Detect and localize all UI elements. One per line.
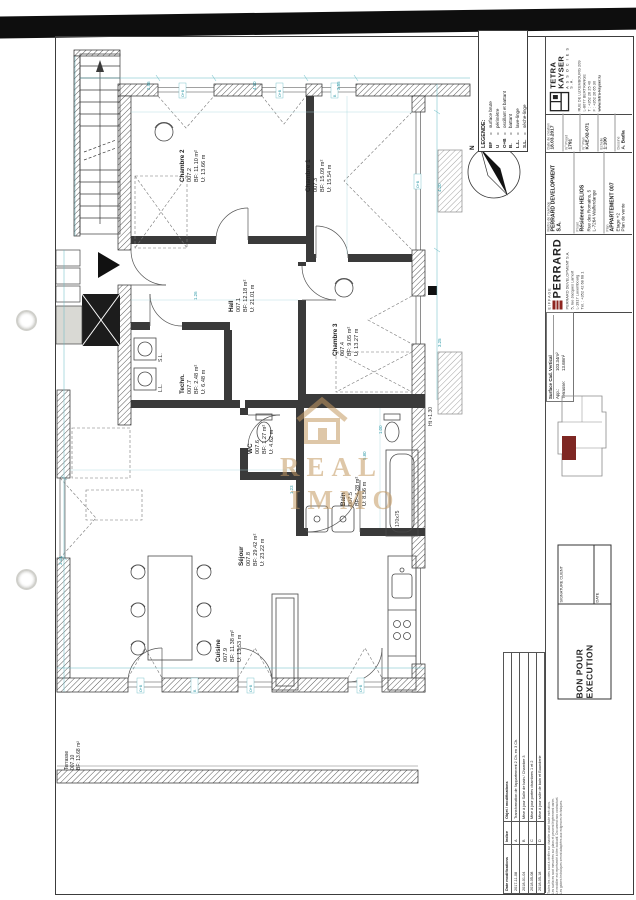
entry-arrow bbox=[98, 252, 120, 278]
room-name: Techn. bbox=[179, 374, 186, 394]
rev-object: Transformation de l'appartement 2 Ch. en… bbox=[512, 653, 520, 822]
window-tag-label: O+B bbox=[181, 89, 185, 97]
architect-web: www.tetra-kayser.lu bbox=[597, 38, 602, 112]
room-name: Cuisine bbox=[215, 639, 222, 662]
north-label: N bbox=[469, 145, 476, 150]
field-value: 1791 bbox=[568, 116, 574, 150]
dimension-value: 3.55 bbox=[336, 81, 341, 90]
field-project-no: N° Projet1791 bbox=[563, 114, 581, 152]
legend-item: U=périmètre bbox=[495, 34, 502, 148]
project-city: L-7264 Walferdange bbox=[591, 154, 596, 232]
field-value: KAE-02-071 bbox=[586, 116, 592, 150]
room-bf: BF: 9.05 m² bbox=[347, 327, 353, 356]
architect-block: TETRA KAYSER A S S O C I E S S.A. RUE DE… bbox=[546, 36, 633, 114]
room-number: 007.3 bbox=[313, 178, 319, 192]
exterior-walls bbox=[57, 50, 470, 783]
window-tag-label: O+B bbox=[249, 684, 253, 692]
tetra-kayser-logo-icon bbox=[548, 92, 572, 112]
room-name: WC bbox=[247, 443, 254, 454]
room-u: U: 13.66 m bbox=[201, 154, 207, 182]
room-label-techn: Techn. 007.7 BF: 2.48 m² U: 6.48 m bbox=[179, 365, 207, 394]
room-name: Hall bbox=[228, 300, 235, 312]
room-u: U: 6.48 m bbox=[201, 369, 207, 394]
room-bf: BF: 11.38 m² bbox=[230, 630, 236, 662]
room-u: U: 23.22 m bbox=[260, 538, 266, 566]
revisions-table: Date modifications Indice Objet / modifi… bbox=[503, 652, 545, 894]
service-boxes bbox=[56, 250, 82, 344]
dimension-value: 1.00 bbox=[378, 425, 383, 434]
rev-date: 2018-01-04 bbox=[520, 845, 528, 894]
window-swing-marks bbox=[60, 96, 412, 678]
field-plan-no: N° PlanKAE-02-071 bbox=[581, 114, 599, 152]
field-value: 1:100 bbox=[603, 116, 609, 150]
notes-block: Toutes les cotes sont à vérifier sur cha… bbox=[547, 652, 563, 894]
legend-item: S.L.=sèche-linge bbox=[522, 34, 529, 148]
legend-item: BF=surface brute bbox=[488, 34, 495, 148]
surfaces-block: Surface Cad. Vertical App.:103.34m² Terr… bbox=[546, 312, 574, 402]
field-date: Date de création18.03.2017 bbox=[546, 114, 564, 152]
plan-type: Plan de vente bbox=[621, 154, 626, 232]
room-number: 007.6 bbox=[255, 440, 261, 454]
rev-header-index: Indice bbox=[504, 822, 512, 845]
dimension-value: 4.20 bbox=[437, 183, 442, 192]
rev-object: Mise à jour Salle de bain / Chambre 3 bbox=[520, 653, 528, 822]
legend-def: surface brute bbox=[488, 101, 495, 128]
room-bf: BF: 12.18 m² bbox=[243, 280, 249, 312]
room-bf: BF: 13.68 m² bbox=[76, 741, 82, 770]
room-label-chambre2: Chambre 2 007.2 BF: 11.10 m² U: 13.66 m bbox=[179, 149, 207, 182]
client-cell: Maître de l'ouvrage PERRARD DEVELOPMENT … bbox=[546, 152, 575, 234]
date-label: DATE bbox=[595, 546, 611, 604]
room-number: 007.7 bbox=[187, 380, 193, 394]
field-scale: Echelle1:100 bbox=[598, 114, 616, 152]
rev-date: 2018-05-08 bbox=[528, 845, 536, 894]
room-label-cuisine: Cuisine 007.9 BF: 11.38 m² U: 13.53 m bbox=[215, 630, 243, 662]
room-bf: BF: 11.10 m² bbox=[194, 150, 200, 182]
window-tag-label: O+B bbox=[359, 684, 363, 692]
room-name: Chambre 1 bbox=[305, 159, 312, 192]
room-number: 007.1 bbox=[236, 298, 242, 312]
dimension-value: 4.20 bbox=[252, 81, 257, 90]
project-cell: Projet Résidence HELIOS Rue des Romains,… bbox=[575, 152, 604, 234]
execution-approval-box: BON POUR EXECUTION SIGNATURE CLIENT DATE bbox=[558, 545, 612, 700]
room-label-chambre1: Chambre 1 007.3 BF: 15.09 m² U: 15.54 m bbox=[305, 159, 333, 192]
execution-title: BON POUR EXECUTION bbox=[559, 605, 611, 699]
window-tag-label: O+B bbox=[139, 684, 143, 692]
site-key-plan bbox=[556, 392, 610, 480]
room-u: U: 4.62 m bbox=[269, 429, 275, 454]
rev-object: Mise à jour salle de bain et Buanderie bbox=[536, 653, 544, 822]
surface-value: 13.68m² bbox=[561, 355, 567, 371]
legend-abbr: S.L. bbox=[522, 135, 529, 148]
revision-row: 2018-05-08 C Mise à jour portes chambres… bbox=[528, 653, 536, 894]
room-name: Chambre 2 bbox=[179, 149, 186, 182]
room-bf: BF: 1.27 m² bbox=[262, 425, 268, 454]
window-tag: O+B bbox=[137, 678, 144, 693]
legend-box: LEGENDE: BF=surface brute U=périmètre O+… bbox=[478, 30, 528, 152]
elevator bbox=[82, 294, 120, 346]
legend-abbr: BF bbox=[488, 135, 495, 148]
rev-object: Mise à jour portes chambres 1 et 2 bbox=[528, 653, 536, 822]
room-u: U: 15.54 m bbox=[327, 164, 333, 192]
room-bf: BF: 29.42 m² bbox=[253, 534, 259, 566]
room-number: 007.2 bbox=[187, 168, 193, 182]
room-number: 007.8 bbox=[246, 552, 252, 566]
legend-def: périmètre bbox=[495, 109, 502, 128]
rev-date: 2017-11-08 bbox=[512, 845, 520, 894]
legend-eq: = bbox=[522, 128, 529, 135]
legend-def: oscillant et battant bbox=[502, 91, 509, 128]
field-value: 18.03.2017 bbox=[551, 116, 557, 150]
window-tag: O+B bbox=[276, 83, 283, 98]
room-bf: BF: 4.28 m² bbox=[355, 477, 361, 506]
legend-item: L.L.=lave-linge bbox=[515, 34, 522, 148]
note-line: Les gaines techniques seront adaptées au… bbox=[559, 652, 563, 894]
window-tag: O+B bbox=[357, 678, 364, 693]
surface-terrace: Terrasse:13.68m² bbox=[561, 315, 567, 399]
rev-date: 2018-05-18 bbox=[536, 845, 544, 894]
room-number: 007.4 bbox=[340, 342, 346, 356]
legend-def: battant bbox=[508, 114, 515, 128]
legend-def: sèche-linge bbox=[522, 105, 529, 129]
room-label-bain: Bain 007.5 BF: 4.28 m² U: 8.56 m bbox=[340, 477, 368, 506]
room-label-chambre3: Chambre 3 007.4 BF: 9.05 m² U: 13.27 m bbox=[332, 323, 360, 356]
bathtub-size-label: 170x75 bbox=[395, 510, 401, 527]
room-u: U: 13.53 m bbox=[237, 634, 243, 662]
windows bbox=[60, 88, 421, 688]
room-number: 007.9 bbox=[223, 648, 229, 662]
legend-eq: = bbox=[495, 128, 502, 135]
room-name: Séjour bbox=[238, 546, 245, 566]
legend-abbr: O+B bbox=[502, 135, 509, 148]
project-identification-block: Maître de l'ouvrage PERRARD DEVELOPMENT … bbox=[546, 152, 633, 234]
field-value: A. Badia bbox=[621, 116, 627, 150]
dimension-value: 1.23 bbox=[289, 485, 294, 494]
room-number: 007.5 bbox=[348, 492, 354, 506]
dryer-label: S.L. bbox=[158, 353, 164, 362]
room-bf: BF: 2.48 m² bbox=[194, 365, 200, 394]
revisions-header-row: Date modifications Indice Objet / modifi… bbox=[504, 653, 512, 894]
room-u: U: 8.56 m bbox=[362, 481, 368, 506]
room-label-sejour: Séjour 007.8 BF: 29.42 m² U: 23.22 m bbox=[238, 534, 266, 566]
legend-abbr: U bbox=[495, 135, 502, 148]
dimension-value: 1.26 bbox=[193, 291, 198, 300]
dimension-value: 3.25 bbox=[437, 338, 442, 347]
perrard-logo-icon bbox=[553, 301, 562, 310]
dimension-value: 5.80 bbox=[362, 451, 367, 460]
height-note: Ht +1.30 bbox=[428, 407, 434, 426]
window-tag: B bbox=[191, 678, 198, 693]
window-tag: O+B bbox=[247, 678, 254, 693]
client-name: PERRARD DEVELOPMENT S.A. bbox=[551, 154, 563, 232]
dimension-value: 3.44 bbox=[58, 556, 63, 565]
field-drawn-by: DessinéA. Badia bbox=[616, 114, 633, 152]
staircase bbox=[80, 54, 120, 234]
revisions-block: Date modifications Indice Objet / modifi… bbox=[503, 652, 545, 894]
room-name: Chambre 3 bbox=[332, 323, 339, 356]
rev-index: B bbox=[520, 822, 528, 845]
legend-eq: = bbox=[508, 128, 515, 135]
contractor-block: EIFFAGE PERRARD PERRARD DEVELOPMENT S.A.… bbox=[546, 234, 633, 312]
dimension-value: 2.96 bbox=[146, 81, 151, 90]
room-u: U: 13.27 m bbox=[354, 328, 360, 356]
room-u: U: 21.01 m bbox=[250, 284, 256, 312]
legend-title: LEGENDE: bbox=[481, 34, 487, 148]
revision-row: 2018-05-18 D Mise à jour salle de bain e… bbox=[536, 653, 544, 894]
legend-item: O+B=oscillant et battant bbox=[502, 34, 509, 148]
contractor-phone: Tél. : +352 42 68 68 1 bbox=[580, 236, 585, 310]
rev-index: D bbox=[536, 822, 544, 845]
legend-eq: = bbox=[502, 128, 509, 135]
room-label-terrasse: Terrasse 007.10 BF: 13.68 m² bbox=[64, 741, 82, 770]
surfaces-title: Surface Cad. Vertical bbox=[548, 315, 554, 399]
legend-eq: = bbox=[488, 128, 495, 135]
contractor-name: PERRARD bbox=[552, 239, 564, 299]
plan-cell: Plan APPARTEMENT 007 Etage +2 Plan de ve… bbox=[604, 152, 632, 234]
room-label-hall: Hall 007.1 BF: 12.18 m² U: 21.01 m bbox=[228, 280, 256, 312]
rev-index: A bbox=[512, 822, 520, 845]
legend-item: B.=battant bbox=[508, 34, 515, 148]
room-name: Bain bbox=[340, 492, 347, 506]
revision-row: 2018-01-04 B Mise à jour Salle de bain /… bbox=[520, 653, 528, 894]
north-compass: N bbox=[468, 145, 520, 198]
drawing-fields-block: Date de création18.03.2017 N° Projet1791… bbox=[546, 114, 633, 152]
architect-subtitle: A S S O C I E S S.A. bbox=[566, 38, 574, 89]
room-bf: BF: 15.09 m² bbox=[320, 160, 326, 192]
window-tag-label: O+B bbox=[278, 89, 282, 97]
rev-header-object: Objet / modifications bbox=[504, 653, 512, 822]
rev-header-date: Date modifications bbox=[504, 845, 512, 894]
window-tag-label: O+B bbox=[416, 180, 420, 188]
signature-label: SIGNATURE CLIENT bbox=[559, 546, 595, 604]
legend-abbr: L.L. bbox=[515, 135, 522, 148]
legend-eq: = bbox=[515, 128, 522, 135]
legend-abbr: B. bbox=[508, 135, 515, 148]
highlighted-unit bbox=[562, 436, 576, 460]
architect-name: TETRA KAYSER bbox=[550, 38, 566, 89]
scanned-floor-plan-sheet: N Chambre 2 007.2 BF: 11.10 m² U: 13.66 … bbox=[0, 0, 636, 900]
legend-def: lave-linge bbox=[515, 108, 522, 128]
rev-index: C bbox=[528, 822, 536, 845]
window-tag: O+B bbox=[414, 174, 421, 189]
window-tag: O+B bbox=[179, 83, 186, 98]
revision-row: 2017-11-08 A Transformation de l'apparte… bbox=[512, 653, 520, 894]
washer-label: L.L. bbox=[158, 384, 164, 392]
